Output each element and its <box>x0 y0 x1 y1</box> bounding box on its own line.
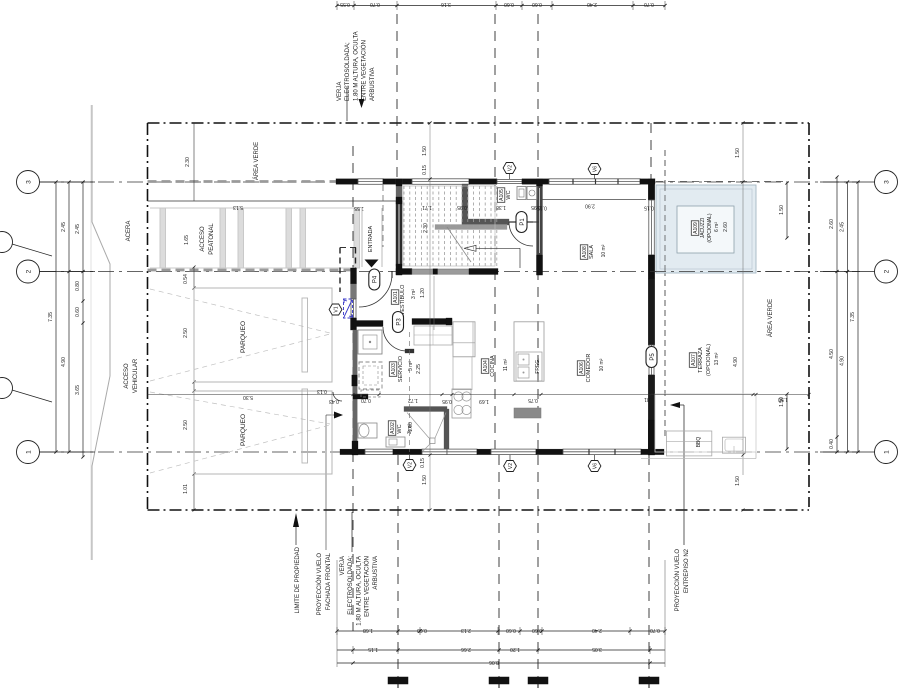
svg-text:PROYECCIÓN VUELO: PROYECCIÓN VUELO <box>674 549 681 612</box>
svg-text:3: 3 <box>884 180 891 184</box>
svg-text:FACHADA FRONTAL: FACHADA FRONTAL <box>326 552 332 610</box>
svg-text:SERVICIO: SERVICIO <box>398 355 404 382</box>
svg-text:V6: V6 <box>592 463 598 469</box>
svg-text:1.38: 1.38 <box>496 204 506 210</box>
svg-text:V2: V2 <box>508 463 514 469</box>
svg-text:5 m²: 5 m² <box>408 361 414 371</box>
svg-text:0.15: 0.15 <box>420 458 426 468</box>
svg-text:1.00: 1.00 <box>408 422 414 432</box>
svg-text:ACERA: ACERA <box>126 221 132 242</box>
svg-text:0.95: 0.95 <box>531 204 541 210</box>
svg-text:V2: V2 <box>407 462 413 468</box>
svg-text:2.40: 2.40 <box>587 1 597 7</box>
svg-text:A104: A104 <box>483 360 489 372</box>
svg-text:2.25: 2.25 <box>416 364 422 374</box>
svg-text:0.75: 0.75 <box>528 397 538 403</box>
svg-text:ACCESO: ACCESO <box>200 226 206 252</box>
svg-text:1.20: 1.20 <box>420 288 426 298</box>
svg-text:1: 1 <box>26 450 33 454</box>
svg-text:13 m²: 13 m² <box>714 352 720 365</box>
svg-text:0.43: 0.43 <box>329 398 339 404</box>
svg-text:0.15: 0.15 <box>644 205 654 211</box>
svg-text:JACUZZI: JACUZZI <box>700 218 706 239</box>
svg-text:1.50: 1.50 <box>778 396 788 402</box>
svg-text:3.16: 3.16 <box>441 1 451 7</box>
svg-text:COMEDOR: COMEDOR <box>586 354 592 383</box>
svg-text:0.13: 0.13 <box>317 388 327 394</box>
svg-text:2: 2 <box>884 269 891 273</box>
svg-text:2.60: 2.60 <box>723 222 729 232</box>
svg-text:V2: V2 <box>507 165 513 171</box>
svg-text:5.30: 5.30 <box>243 394 253 400</box>
svg-text:0.60: 0.60 <box>532 627 542 633</box>
svg-text:ÁREA VERDE: ÁREA VERDE <box>253 142 260 180</box>
svg-text:P1: P1 <box>520 218 526 226</box>
svg-text:5.81: 5.81 <box>644 396 654 402</box>
svg-text:COCINA: COCINA <box>490 355 496 377</box>
svg-text:0.60: 0.60 <box>506 627 516 633</box>
svg-text:0.40: 0.40 <box>829 439 835 449</box>
svg-text:(OPCIONAL): (OPCIONAL) <box>707 213 713 243</box>
svg-text:ARBUSTIVA: ARBUSTIVA <box>370 67 376 101</box>
svg-text:1.80 M ALTURA, OCULTA: 1.80 M ALTURA, OCULTA <box>356 556 362 626</box>
svg-text:0.15: 0.15 <box>422 165 428 175</box>
svg-text:2.50: 2.50 <box>183 328 189 338</box>
svg-text:P4: P4 <box>373 275 379 283</box>
svg-text:0.95: 0.95 <box>442 398 452 404</box>
svg-text:2.60: 2.60 <box>829 219 835 229</box>
svg-text:FREG.: FREG. <box>535 358 541 373</box>
svg-text:1: 1 <box>884 450 891 454</box>
svg-text:P3: P3 <box>396 318 402 326</box>
svg-text:11 m²: 11 m² <box>503 358 509 371</box>
svg-text:4.90: 4.90 <box>61 357 67 367</box>
svg-text:A105: A105 <box>499 189 505 201</box>
svg-text:2.90: 2.90 <box>585 203 595 209</box>
svg-text:A107: A107 <box>691 354 697 366</box>
svg-text:2.45: 2.45 <box>840 222 846 232</box>
svg-text:2.50: 2.50 <box>183 420 189 430</box>
svg-text:ELECTROSOLDADA;: ELECTROSOLDADA; <box>345 42 351 101</box>
svg-text:VESTÍBULO: VESTÍBULO <box>399 284 406 316</box>
svg-text:VERJA: VERJA <box>340 556 346 575</box>
svg-text:2.40: 2.40 <box>592 627 602 633</box>
svg-text:ENTRADA: ENTRADA <box>368 226 374 253</box>
svg-text:0.70: 0.70 <box>644 1 654 7</box>
svg-text:1.01: 1.01 <box>183 484 189 494</box>
svg-text:A102: A102 <box>390 422 396 434</box>
svg-text:2.30: 2.30 <box>185 157 191 167</box>
svg-text:1.80 M ALTURA, OCULTA: 1.80 M ALTURA, OCULTA <box>353 31 359 101</box>
svg-text:BBQ: BBQ <box>696 437 702 448</box>
svg-text:0.60: 0.60 <box>75 307 81 317</box>
svg-text:0.60: 0.60 <box>417 627 427 633</box>
svg-text:1.50: 1.50 <box>422 146 428 156</box>
svg-text:WC: WC <box>506 190 512 199</box>
svg-text:0.70: 0.70 <box>650 627 660 633</box>
svg-text:4.90: 4.90 <box>840 356 846 366</box>
svg-text:0.70: 0.70 <box>370 1 380 7</box>
svg-text:5.13: 5.13 <box>233 204 243 210</box>
svg-text:4.90: 4.90 <box>733 357 739 367</box>
svg-text:7.35: 7.35 <box>850 312 856 322</box>
svg-text:1.20: 1.20 <box>510 646 520 652</box>
svg-text:0.60: 0.60 <box>532 1 542 7</box>
svg-text:3 m²: 3 m² <box>411 289 417 299</box>
svg-text:V1: V1 <box>333 306 339 312</box>
svg-text:LIMITE DE PROPIEDAD: LIMITE DE PROPIEDAD <box>295 546 301 613</box>
svg-text:VEHICULAR: VEHICULAR <box>133 358 139 393</box>
svg-text:1.50: 1.50 <box>735 476 741 486</box>
svg-text:2.45: 2.45 <box>75 224 81 234</box>
svg-text:A106: A106 <box>579 362 585 374</box>
svg-text:1.50: 1.50 <box>422 475 428 485</box>
svg-text:1.50: 1.50 <box>735 148 741 158</box>
svg-text:ENTRE VEGETACIÓN: ENTRE VEGETACIÓN <box>364 556 371 617</box>
svg-text:4.50: 4.50 <box>829 349 835 359</box>
svg-text:PARQUEO: PARQUEO <box>240 321 247 353</box>
svg-text:2: 2 <box>26 269 33 273</box>
svg-text:3: 3 <box>26 180 33 184</box>
svg-text:1.71: 1.71 <box>422 204 432 210</box>
svg-text:WC: WC <box>397 424 403 433</box>
svg-text:PROYECCIÓN VUELO: PROYECCIÓN VUELO <box>316 553 323 616</box>
svg-text:PARQUEO: PARQUEO <box>240 414 247 446</box>
svg-text:0.60: 0.60 <box>504 1 514 7</box>
svg-text:1.69: 1.69 <box>479 398 489 404</box>
svg-text:1.72: 1.72 <box>408 397 418 403</box>
svg-text:0.80: 0.80 <box>75 281 81 291</box>
svg-text:1.50: 1.50 <box>779 205 785 215</box>
svg-text:A103: A103 <box>391 363 397 375</box>
svg-text:ENTREPISO N2: ENTREPISO N2 <box>684 548 690 593</box>
svg-text:V6: V6 <box>592 166 598 172</box>
svg-text:PEATONAL: PEATONAL <box>209 223 215 255</box>
svg-text:P5: P5 <box>650 353 656 361</box>
svg-text:1.68: 1.68 <box>363 627 373 633</box>
svg-text:ACCESO: ACCESO <box>124 363 130 389</box>
svg-text:ÁREA VERDE: ÁREA VERDE <box>767 299 774 337</box>
svg-text:10 m²: 10 m² <box>601 244 607 257</box>
svg-text:6 m²: 6 m² <box>714 222 720 232</box>
svg-text:0.70: 0.70 <box>361 397 371 403</box>
svg-text:2.66: 2.66 <box>461 646 471 652</box>
svg-text:0.54: 0.54 <box>183 274 189 284</box>
svg-text:SALA: SALA <box>589 245 595 259</box>
svg-text:1.65: 1.65 <box>184 235 190 245</box>
svg-text:10 m²: 10 m² <box>599 358 605 371</box>
svg-text:3.05: 3.05 <box>592 646 602 652</box>
svg-text:0.95: 0.95 <box>457 204 467 210</box>
svg-text:VERJA: VERJA <box>337 82 343 101</box>
svg-text:(OPCIONAL): (OPCIONAL) <box>706 344 712 376</box>
svg-text:ARBUSTIVA: ARBUSTIVA <box>373 556 379 590</box>
svg-text:2.30: 2.30 <box>423 223 429 233</box>
svg-text:2.13: 2.13 <box>461 627 471 633</box>
svg-text:7.35: 7.35 <box>48 312 54 322</box>
svg-text:3.65: 3.65 <box>75 385 81 395</box>
svg-text:TERRAZA: TERRAZA <box>698 347 704 373</box>
svg-text:A101: A101 <box>393 291 399 303</box>
svg-text:A109: A109 <box>693 222 699 234</box>
svg-text:ELECTROSOLDADA;: ELECTROSOLDADA; <box>348 556 354 615</box>
svg-text:0.55: 0.55 <box>340 1 350 7</box>
svg-text:1.15: 1.15 <box>368 646 378 652</box>
svg-text:8.06: 8.06 <box>489 659 499 665</box>
svg-text:2.45: 2.45 <box>61 222 67 232</box>
svg-text:A108: A108 <box>582 246 588 258</box>
